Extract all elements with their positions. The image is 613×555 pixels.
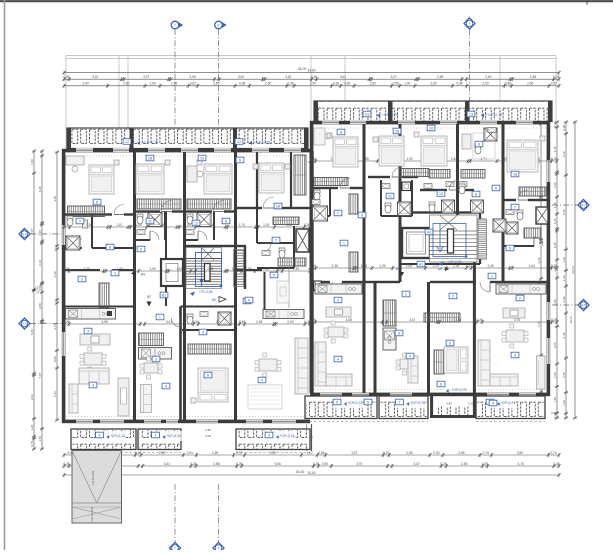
- svg-text:0,36: 0,36: [311, 75, 317, 79]
- svg-text:+CP=2,75: +CP=2,75: [452, 388, 467, 392]
- svg-text:12: 12: [237, 139, 241, 144]
- svg-text:7: 7: [154, 432, 156, 437]
- svg-text:8: 8: [475, 191, 477, 196]
- svg-text:4,76: 4,76: [514, 318, 520, 322]
- svg-text:1,06: 1,06: [553, 218, 557, 224]
- svg-text:1,20: 1,20: [553, 202, 557, 208]
- svg-text:7,87: 7,87: [38, 372, 42, 378]
- svg-text:3,97: 3,97: [356, 462, 362, 466]
- svg-text:+CP=2,15: +CP=2,15: [280, 434, 295, 438]
- svg-text:1,00: 1,00: [404, 82, 410, 86]
- svg-text:0,20: 0,20: [468, 402, 474, 406]
- svg-text:1: 1: [405, 291, 407, 296]
- svg-text:0,80: 0,80: [53, 356, 57, 362]
- svg-text:5,60: 5,60: [30, 329, 34, 335]
- svg-text:12: 12: [439, 191, 443, 196]
- svg-text:12: 12: [125, 139, 129, 144]
- svg-text:0,36: 0,36: [310, 157, 316, 161]
- svg-text:0,62: 0,62: [190, 82, 196, 86]
- svg-text:3,20: 3,20: [285, 75, 291, 79]
- svg-text:+CP=2,75: +CP=2,75: [501, 401, 516, 405]
- svg-text:1,92: 1,92: [407, 157, 413, 161]
- svg-text:18: 18: [513, 171, 517, 176]
- svg-text:2,80: 2,80: [406, 451, 412, 455]
- svg-text:0,36: 0,36: [63, 462, 69, 466]
- svg-text:3: 3: [514, 352, 516, 357]
- svg-text:3,60: 3,60: [446, 402, 452, 406]
- svg-text:incl.15,00%: incl.15,00%: [90, 506, 94, 521]
- svg-text:0,55: 0,55: [393, 82, 399, 86]
- svg-text:2,55: 2,55: [212, 451, 218, 455]
- svg-text:0,48: 0,48: [505, 82, 511, 86]
- svg-text:2,93: 2,93: [38, 260, 42, 266]
- svg-text:6: 6: [109, 244, 111, 249]
- svg-text:3,47: 3,47: [409, 318, 415, 322]
- svg-text:1,00: 1,00: [361, 264, 367, 268]
- svg-text:7: 7: [275, 237, 277, 242]
- svg-text:2,65: 2,65: [562, 372, 566, 378]
- svg-text:18: 18: [148, 155, 152, 160]
- svg-text:0,36: 0,36: [64, 75, 70, 79]
- svg-text:34,00: 34,00: [308, 471, 316, 475]
- svg-text:8: 8: [96, 199, 98, 204]
- svg-text:2,50: 2,50: [430, 82, 436, 86]
- svg-text:6: 6: [495, 185, 497, 190]
- svg-text:BE: BE: [212, 298, 216, 302]
- svg-text:19,44: 19,44: [569, 316, 573, 324]
- svg-text:2,36: 2,36: [332, 264, 338, 268]
- svg-text:3,07: 3,07: [143, 75, 149, 79]
- svg-text:0,90: 0,90: [344, 82, 350, 86]
- svg-text:0,90: 0,90: [562, 125, 566, 131]
- svg-text:1,20: 1,20: [30, 424, 34, 430]
- svg-text:0,96: 0,96: [239, 82, 245, 86]
- svg-text:2: 2: [81, 276, 83, 281]
- svg-text:5: 5: [273, 272, 275, 277]
- svg-text:2,50: 2,50: [265, 82, 271, 86]
- svg-text:1,10: 1,10: [116, 223, 122, 227]
- svg-text:7: 7: [174, 23, 176, 27]
- svg-text:1,50: 1,50: [177, 267, 183, 271]
- svg-text:4,25: 4,25: [53, 196, 57, 202]
- svg-text:2,05: 2,05: [553, 242, 557, 248]
- svg-text:0,36: 0,36: [64, 267, 70, 271]
- svg-text:3,18: 3,18: [553, 146, 557, 152]
- svg-text:0,91: 0,91: [187, 451, 193, 455]
- svg-text:+CP=2,75: +CP=2,75: [254, 141, 270, 145]
- svg-text:1,50: 1,50: [263, 267, 269, 271]
- svg-text:3,00: 3,00: [205, 434, 211, 438]
- svg-text:4,70: 4,70: [518, 462, 524, 466]
- svg-text:3,47: 3,47: [413, 462, 419, 466]
- svg-text:1,87: 1,87: [553, 396, 557, 402]
- svg-text:2,44: 2,44: [529, 264, 535, 268]
- svg-text:0,36: 0,36: [239, 320, 245, 324]
- svg-text:0,36: 0,36: [236, 462, 242, 466]
- svg-text:+CP=2,15: +CP=2,15: [166, 434, 181, 438]
- svg-text:0,41: 0,41: [383, 451, 389, 455]
- svg-text:2,02: 2,02: [537, 257, 541, 263]
- svg-text:2,50: 2,50: [310, 82, 316, 86]
- svg-text:0,36: 0,36: [310, 318, 316, 322]
- svg-text:0,36: 0,36: [277, 267, 283, 271]
- svg-text:3,41: 3,41: [166, 320, 172, 324]
- svg-text:0,67: 0,67: [551, 82, 557, 86]
- svg-text:B1: B1: [162, 292, 167, 297]
- svg-text:A1: A1: [419, 261, 424, 266]
- svg-text:13: 13: [469, 111, 473, 116]
- svg-text:4,98: 4,98: [102, 320, 108, 324]
- svg-text:7,87: 7,87: [30, 228, 34, 234]
- svg-text:1,60: 1,60: [553, 372, 557, 378]
- svg-text:0,36: 0,36: [551, 157, 557, 161]
- svg-text:3,00: 3,00: [485, 75, 491, 79]
- svg-text:2,36: 2,36: [83, 267, 89, 271]
- svg-text:1,50: 1,50: [30, 159, 34, 165]
- svg-text:3,61: 3,61: [92, 75, 98, 79]
- svg-text:2,55: 2,55: [461, 462, 467, 466]
- svg-text:7: 7: [398, 399, 400, 404]
- svg-text:6: 6: [440, 381, 442, 386]
- svg-text:0,36: 0,36: [482, 462, 488, 466]
- svg-text:5: 5: [336, 399, 338, 404]
- svg-text:1,29: 1,29: [433, 264, 439, 268]
- svg-text:2,65: 2,65: [553, 342, 557, 348]
- svg-text:+CP=2,15: +CP=2,15: [110, 434, 125, 438]
- svg-text:7: 7: [337, 210, 339, 215]
- svg-text:0,36: 0,36: [193, 320, 199, 324]
- svg-text:3,07: 3,07: [391, 75, 397, 79]
- svg-text:0,36: 0,36: [476, 318, 482, 322]
- svg-text:2,85: 2,85: [530, 75, 536, 79]
- svg-text:8: 8: [225, 218, 227, 223]
- svg-text:E-7: E-7: [581, 203, 586, 207]
- svg-text:2,50: 2,50: [370, 82, 376, 86]
- svg-text:0,56: 0,56: [318, 451, 324, 455]
- svg-text:9: 9: [361, 212, 363, 217]
- svg-text:1,88: 1,88: [171, 82, 177, 86]
- svg-text:2: 2: [519, 295, 521, 300]
- svg-text:BG: BG: [141, 272, 146, 276]
- svg-text:E-4: E-4: [22, 232, 27, 236]
- svg-text:1,62: 1,62: [562, 257, 566, 263]
- svg-text:+CP=2,75: +CP=2,75: [410, 401, 425, 405]
- svg-text:7: 7: [514, 204, 516, 209]
- svg-text:1,90: 1,90: [150, 267, 156, 271]
- svg-text:1,62: 1,62: [553, 182, 557, 188]
- svg-text:3,00: 3,00: [238, 75, 244, 79]
- svg-text:11: 11: [148, 218, 152, 223]
- svg-text:3,90: 3,90: [517, 451, 523, 455]
- svg-text:1: 1: [114, 270, 116, 275]
- svg-text:E-8: E-8: [581, 303, 586, 307]
- svg-text:5: 5: [367, 399, 369, 404]
- svg-text:0,32: 0,32: [466, 264, 472, 268]
- svg-text:1,00: 1,00: [149, 82, 155, 86]
- svg-text:2,50: 2,50: [482, 82, 488, 86]
- svg-text:AF: AF: [396, 267, 400, 271]
- svg-text:12: 12: [194, 220, 198, 225]
- svg-text:6,58: 6,58: [551, 411, 557, 415]
- svg-text:3,45: 3,45: [553, 299, 557, 305]
- svg-text:0,74: 0,74: [551, 451, 557, 455]
- svg-text:5,70: 5,70: [562, 209, 566, 215]
- svg-text:0,79: 0,79: [483, 451, 489, 455]
- svg-text:18: 18: [395, 128, 399, 133]
- svg-text:+CP=2,75: +CP=2,75: [382, 113, 398, 117]
- svg-text:2,08: 2,08: [38, 303, 42, 309]
- svg-text:0,90: 0,90: [322, 462, 328, 466]
- svg-text:1,20: 1,20: [38, 230, 42, 236]
- svg-text:CP=2,80: CP=2,80: [199, 290, 212, 294]
- svg-text:0,36: 0,36: [304, 223, 310, 227]
- svg-text:0,90: 0,90: [245, 267, 251, 271]
- svg-text:incl.22,22%: incl.22,22%: [91, 470, 95, 485]
- svg-text:13: 13: [365, 111, 369, 116]
- svg-text:2: 2: [452, 293, 454, 298]
- svg-text:1: 1: [343, 240, 345, 245]
- svg-text:1: 1: [159, 314, 161, 319]
- svg-text:9: 9: [478, 141, 480, 146]
- svg-text:2,08: 2,08: [562, 296, 566, 302]
- svg-text:2,55: 2,55: [458, 451, 464, 455]
- svg-text:+CP=2,75: +CP=2,75: [142, 141, 158, 145]
- svg-text:21,44: 21,44: [36, 286, 40, 294]
- svg-text:2,93: 2,93: [30, 394, 34, 400]
- svg-text:6: 6: [207, 372, 209, 377]
- svg-text:3,97: 3,97: [351, 451, 357, 455]
- svg-text:9: 9: [449, 340, 451, 345]
- svg-text:2,50: 2,50: [213, 82, 219, 86]
- svg-text:BF: BF: [147, 295, 151, 299]
- svg-text:8: 8: [218, 23, 220, 27]
- svg-text:34,00: 34,00: [298, 67, 307, 71]
- svg-text:9: 9: [239, 157, 241, 162]
- svg-text:2,88: 2,88: [213, 462, 219, 466]
- svg-text:0,60: 0,60: [333, 82, 339, 86]
- svg-text:2,50: 2,50: [123, 82, 129, 86]
- svg-text:1,90: 1,90: [293, 267, 299, 271]
- svg-text:0,36: 0,36: [553, 462, 559, 466]
- svg-text:1,00: 1,00: [232, 267, 238, 271]
- svg-text:7: 7: [79, 218, 81, 223]
- svg-text:1,84: 1,84: [451, 157, 457, 161]
- svg-text:0,96: 0,96: [456, 82, 462, 86]
- svg-text:3,41: 3,41: [164, 462, 170, 466]
- svg-text:1,00: 1,00: [263, 223, 269, 227]
- svg-text:E-6: E-6: [22, 322, 27, 326]
- svg-text:2,40: 2,40: [487, 264, 493, 268]
- svg-text:3,45: 3,45: [562, 332, 566, 338]
- svg-text:2,05: 2,05: [406, 264, 412, 268]
- svg-text:9: 9: [140, 246, 142, 251]
- svg-text:0,48: 0,48: [287, 82, 293, 86]
- svg-text:0,36: 0,36: [310, 264, 316, 268]
- svg-text:A2: A2: [427, 229, 432, 234]
- svg-text:1: 1: [491, 273, 493, 278]
- svg-text:34,00: 34,00: [308, 68, 316, 72]
- svg-text:3,61: 3,61: [340, 75, 346, 79]
- svg-text:+CP=2,75: +CP=2,75: [486, 113, 502, 117]
- svg-text:1,26: 1,26: [453, 264, 459, 268]
- svg-text:2,05: 2,05: [207, 267, 213, 271]
- svg-text:0,36: 0,36: [551, 318, 557, 322]
- svg-text:0,36: 0,36: [313, 462, 319, 466]
- svg-text:5: 5: [98, 432, 100, 437]
- svg-text:2: 2: [202, 329, 204, 334]
- svg-text:0,36: 0,36: [441, 462, 447, 466]
- svg-text:0,36: 0,36: [553, 75, 559, 79]
- svg-text:1,74: 1,74: [239, 223, 245, 227]
- svg-text:2,50: 2,50: [527, 82, 533, 86]
- svg-text:2,99: 2,99: [437, 75, 443, 79]
- svg-text:2,90: 2,90: [83, 82, 89, 86]
- svg-text:1,50: 1,50: [38, 436, 42, 442]
- svg-text:3: 3: [337, 297, 339, 302]
- svg-text:1,50: 1,50: [363, 157, 369, 161]
- svg-text:2,03: 2,03: [287, 320, 293, 324]
- svg-text:0,36: 0,36: [553, 121, 557, 127]
- svg-text:3: 3: [87, 328, 89, 333]
- svg-text:2,36: 2,36: [53, 391, 57, 397]
- svg-text:5,06: 5,06: [275, 462, 281, 466]
- svg-text:34,00: 34,00: [296, 470, 305, 474]
- svg-text:1,60: 1,60: [562, 400, 566, 406]
- svg-text:1,20: 1,20: [562, 275, 566, 281]
- svg-text:20,44: 20,44: [571, 266, 575, 274]
- svg-text:0,90: 0,90: [433, 451, 439, 455]
- svg-text:2,99: 2,99: [189, 75, 195, 79]
- svg-text:8: 8: [340, 129, 342, 134]
- svg-text:0,36: 0,36: [63, 320, 69, 324]
- svg-text:2,05: 2,05: [256, 320, 262, 324]
- svg-text:5: 5: [509, 245, 511, 250]
- svg-text:11: 11: [388, 193, 392, 198]
- svg-text:2,15: 2,15: [53, 323, 57, 329]
- svg-text:3: 3: [155, 356, 157, 361]
- svg-text:2,30: 2,30: [53, 271, 57, 277]
- svg-text:0,36: 0,36: [190, 462, 196, 466]
- svg-text:+CP=2,75: +CP=2,75: [348, 401, 363, 405]
- svg-text:0,36: 0,36: [551, 264, 557, 268]
- svg-text:18: 18: [276, 203, 280, 208]
- svg-text:1,29: 1,29: [379, 264, 385, 268]
- svg-text:2,90: 2,90: [205, 428, 211, 432]
- svg-text:3: 3: [398, 330, 400, 335]
- svg-text:3,18: 3,18: [562, 151, 566, 157]
- svg-text:4,58: 4,58: [346, 318, 352, 322]
- svg-text:4,95: 4,95: [38, 186, 42, 192]
- svg-text:0,70: 0,70: [30, 441, 34, 447]
